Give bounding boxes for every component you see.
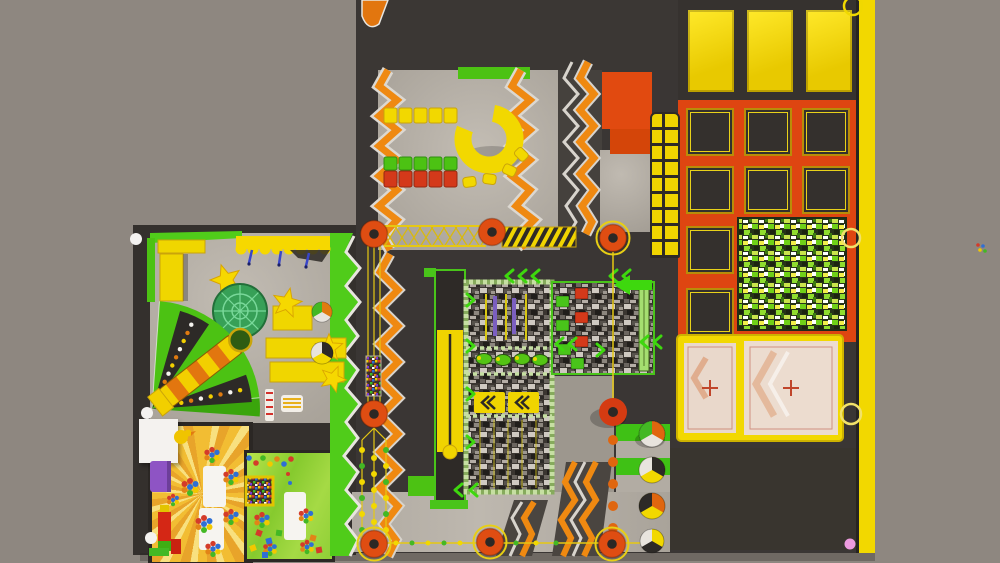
candy-ladder	[265, 389, 274, 421]
green-room-props	[246, 455, 322, 558]
battle-beam-lane	[424, 268, 468, 509]
camo-climbing-wall	[738, 218, 846, 330]
color-speck	[976, 243, 987, 253]
stepping-stone-pit	[552, 275, 654, 374]
kids-canopy	[236, 236, 331, 269]
mat-markings	[688, 347, 832, 429]
foam-pit-left	[466, 282, 552, 492]
decor-overlay	[0, 0, 1000, 563]
ball-pit-props	[149, 430, 239, 558]
kids-play-balls	[311, 302, 333, 364]
pink-marker-dot	[845, 539, 856, 550]
trampoline-park-floor-plan	[0, 0, 1000, 563]
green-mat-small	[408, 476, 434, 496]
wrecking-balls	[635, 421, 665, 553]
striped-bench	[281, 395, 303, 412]
wall-rings	[841, 0, 862, 424]
corner-slide-wedge	[362, 0, 388, 27]
